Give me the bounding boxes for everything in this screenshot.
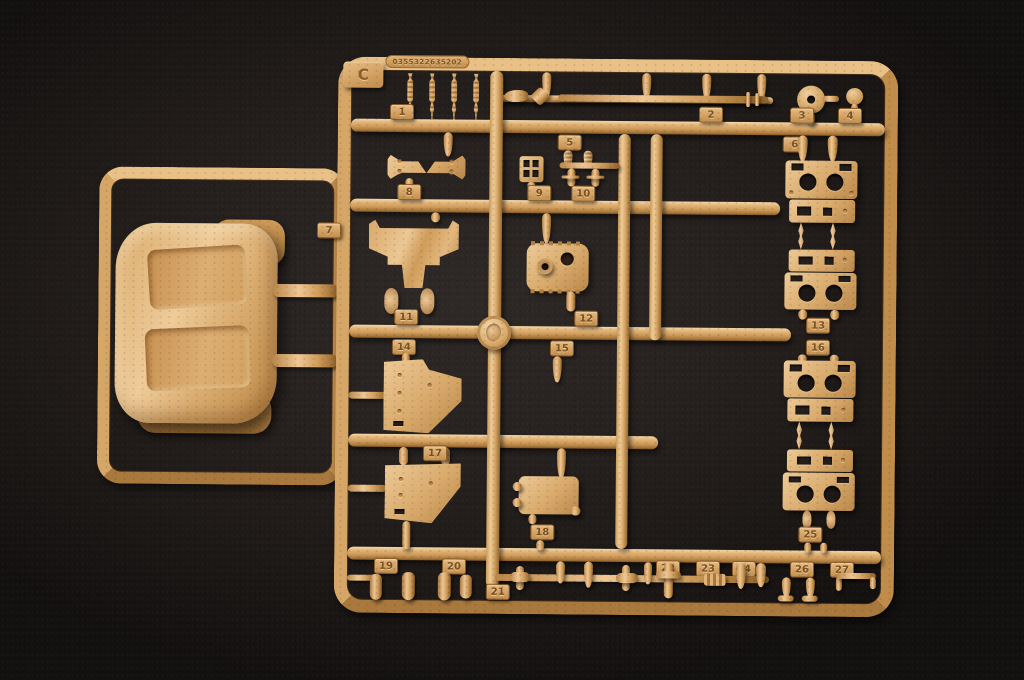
axle-fitting [510,572,530,582]
gate-post [820,543,827,553]
plate-slot [839,164,851,171]
part-tag-8: 8 [397,184,421,200]
part-cylinder [370,574,382,600]
plate-slot [838,365,850,372]
rivet [398,391,402,395]
rivet [843,209,847,213]
track-plate-small [787,398,853,422]
box-port-hole [542,263,549,270]
valve-crossbar [656,571,681,578]
part-tag-2: 2 [699,107,723,123]
plate-slot [791,163,803,170]
part-hood-lower-panel [145,325,252,391]
rail-row-5 [348,434,658,450]
part-tag-16: 16 [806,340,830,356]
hood-gate-stub-upper [272,284,338,298]
pin-foot [802,596,818,602]
rivet [450,159,454,163]
plate-slot [795,405,809,414]
rivet [841,408,845,412]
track-plate-large [784,360,856,398]
part-tag-11: 11 [394,309,418,325]
bracket-leg [836,577,842,591]
box-ribs-top [531,241,585,245]
part-pin-flange [561,175,579,178]
plate-slot [797,206,811,215]
block-slot [523,170,529,177]
rivet [398,159,402,163]
rivet [449,169,453,173]
part-tag-18: 18 [530,524,554,540]
gate-post [536,540,544,550]
plate-slot [394,509,404,514]
gate-post [402,521,410,549]
part-rod-fin [746,92,750,107]
pin-foot [778,595,794,601]
box-filler-hole [561,252,574,265]
part-bulb-post [826,511,835,529]
gate-stub [348,485,387,492]
part-tag-1: 1 [390,104,414,120]
part-tag-25: 25 [798,527,822,543]
part-rod-fin [755,93,759,106]
runner-letter-tab: C [343,62,383,88]
part-ribbed-block [704,574,726,586]
plate-slot [825,257,834,265]
rail-column-right-outer [649,134,663,340]
block-slot [524,160,530,167]
plate-hole [824,486,841,503]
plate-hole [825,375,842,392]
rivet [843,258,847,262]
rivet [429,481,433,485]
medallion-emblem [484,322,503,342]
part-tag-17: 17 [423,445,447,461]
plate-hole [799,174,816,191]
part-wheel-hub [807,96,815,104]
part-tag-7: 7 [317,222,341,238]
track-plate-small [787,449,853,472]
part-cylinder [438,572,451,600]
maker-medallion [477,316,511,350]
part-tag-21: 21 [486,584,510,600]
part-valve-post [664,562,673,598]
axle-fitting [616,573,638,583]
plate-slot [791,275,803,281]
part-tag-12: 12 [574,311,598,327]
gate-post [431,212,440,222]
part-cap [846,88,863,105]
rivet [849,191,853,195]
plate-slot [790,364,802,371]
plate-slot [823,208,832,216]
block-slot [533,160,539,167]
part-crossbar [559,162,619,169]
plate-hole [798,374,815,391]
part-tag-3: 3 [790,107,814,123]
rivet [428,383,432,387]
part-hood-upper-panel [147,244,248,310]
rivet [397,409,401,413]
gate-post [528,514,536,524]
plate-hole [826,174,843,191]
rivet [397,169,401,173]
part-hood-body [114,223,278,424]
part-tag-4: 4 [838,108,862,124]
gate-post [804,543,811,553]
rivet [841,458,845,462]
rivet [398,373,402,377]
box-ribs-bottom [530,289,584,293]
part-cylinder [402,572,415,600]
track-plate-large [785,160,857,199]
track-plate-large [783,472,855,511]
bracket-leg [870,577,876,589]
housing-fitting [513,482,522,491]
rivet [399,477,403,481]
mold-code-plate: 0355322635202 [385,55,469,69]
part-pin-flange [586,176,604,179]
plate-slot [789,476,801,482]
part-tag-10: 10 [571,186,595,202]
plate-hole [797,485,814,502]
gate-post [399,447,408,465]
plate-slot [799,256,813,264]
housing-fitting [513,498,522,507]
plate-slot [839,276,851,282]
part-cylinder [460,575,472,599]
plate-slot [823,457,832,465]
plate-slot [393,421,403,426]
part-bulb-post [420,288,434,314]
part-tag-5: 5 [558,134,582,150]
part-tag-26: 26 [790,561,814,577]
gate-stub [348,392,386,399]
plate-slot [797,456,811,464]
sprue-runner-c: C 0355322635202 1 2 3 4 5 6 [0,0,1024,680]
part-tag-19: 19 [374,558,398,574]
part-tag-13: 13 [806,318,830,334]
track-plate-small [789,249,855,272]
part-tag-15: 15 [550,340,574,356]
gate-post [830,310,839,320]
rivet [789,190,793,194]
rivet [399,493,403,497]
plate-hole [825,285,842,302]
part-wheel-stub [823,96,839,102]
block-slot [532,170,538,177]
plate-slot [837,477,849,483]
housing-fitting [570,507,580,516]
gate-post [566,291,575,311]
track-plate-small [789,199,855,223]
plate-hole [798,284,815,301]
hood-gate-stub-lower [272,354,338,368]
track-plate-large [784,272,856,310]
plate-slot [821,407,830,415]
photo-stage: C 0355322635202 1 2 3 4 5 6 [0,0,1024,680]
part-tag-9: 9 [527,185,551,201]
part-spindle [504,90,528,102]
